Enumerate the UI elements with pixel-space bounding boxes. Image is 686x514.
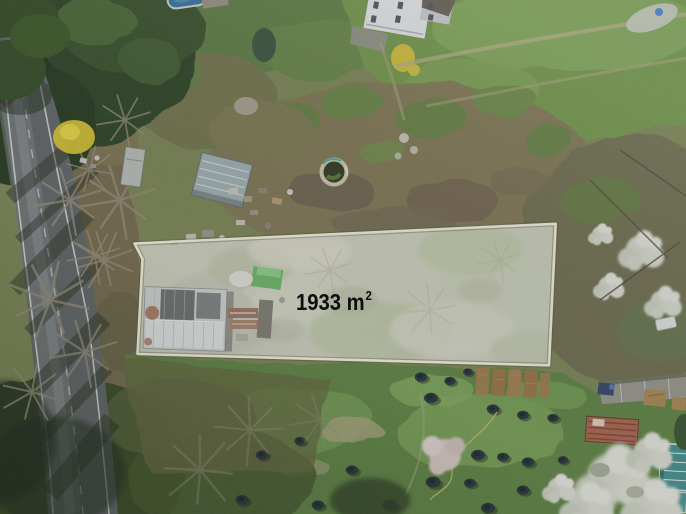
area-exponent: 2 <box>366 289 372 302</box>
aerial-photo <box>0 0 686 514</box>
aerial-photo-stage: 1933 m2 <box>0 0 686 514</box>
lighting-overlay <box>0 0 686 514</box>
area-value: 1933 m <box>296 289 365 315</box>
area-label: 1933 m2 <box>296 291 372 314</box>
